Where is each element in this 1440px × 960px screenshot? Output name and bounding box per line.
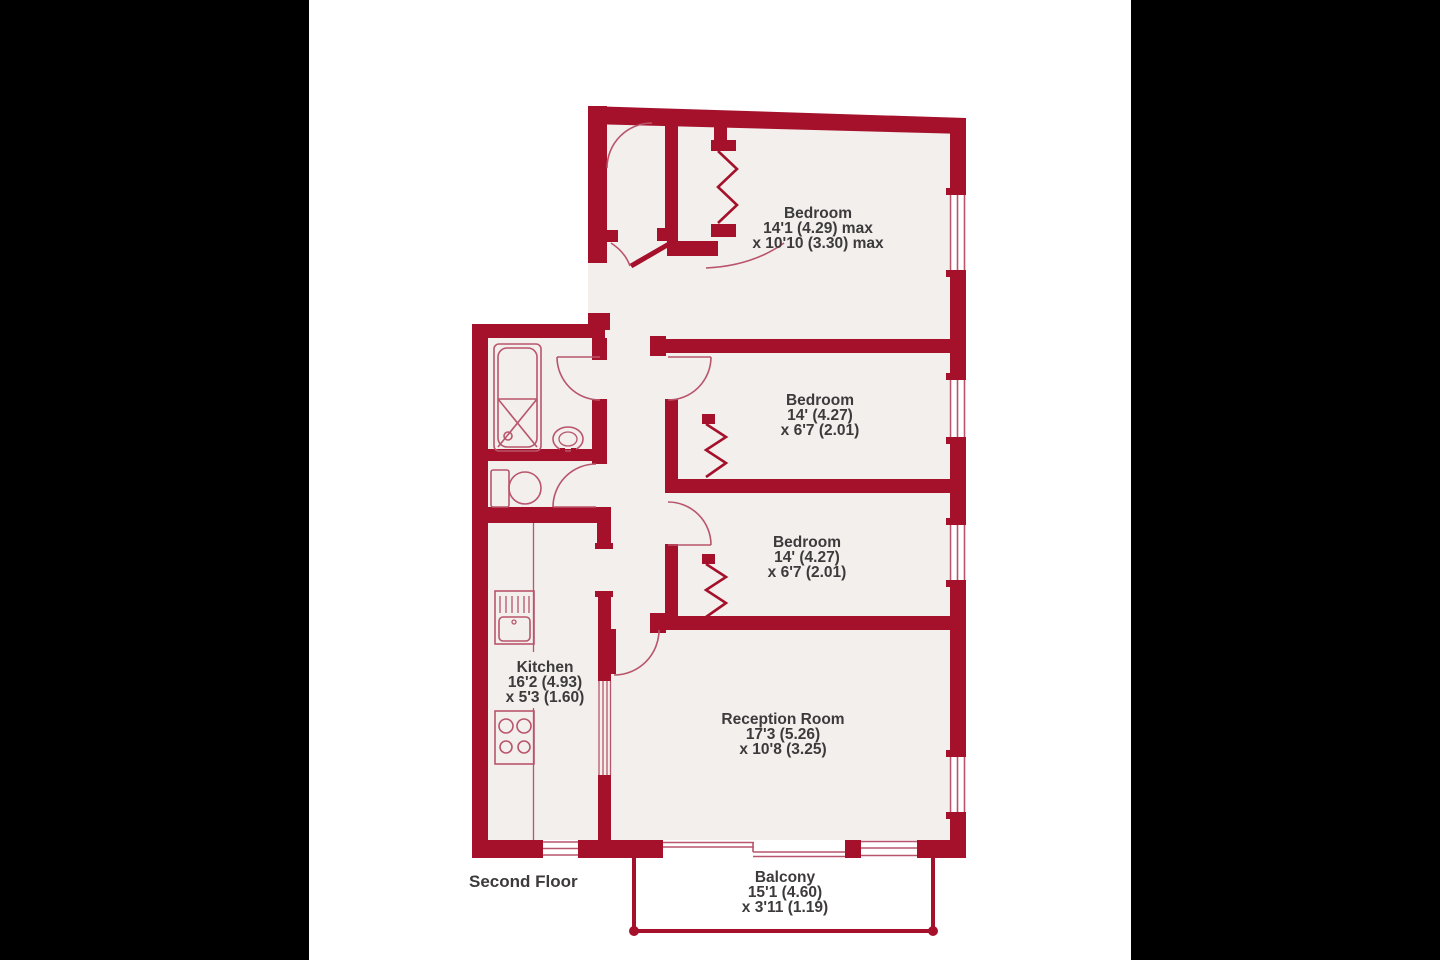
window-bedroom3 bbox=[946, 518, 967, 587]
window-kitchen-south bbox=[543, 840, 578, 858]
left-lower-wall bbox=[472, 324, 488, 858]
bedroom1-door-leaf bbox=[667, 241, 718, 256]
step-wall bbox=[472, 324, 605, 338]
bottom-wall-pier bbox=[845, 840, 861, 858]
window-reception-south bbox=[861, 840, 917, 858]
reception-dim2: x 10'8 (3.25) bbox=[739, 741, 826, 758]
reception-door-leaf bbox=[609, 629, 616, 674]
balcony-sliding-door bbox=[663, 840, 847, 858]
floor-plan: Bedroom 14'1 (4.29) max x 10'10 (3.30) m… bbox=[0, 0, 1440, 960]
floor-plan-page: Bedroom 14'1 (4.29) max x 10'10 (3.30) m… bbox=[0, 0, 1440, 960]
bedroom2-dim2: x 6'7 (2.01) bbox=[781, 422, 860, 439]
window-bedroom1 bbox=[946, 188, 967, 277]
bedroom3-dim2: x 6'7 (2.01) bbox=[768, 564, 847, 581]
bedroom1-dim2: x 10'10 (3.30) max bbox=[752, 235, 884, 252]
left-upper-wall bbox=[588, 106, 607, 263]
window-bedroom2 bbox=[946, 373, 967, 444]
balcony-dim2: x 3'11 (1.19) bbox=[742, 899, 828, 916]
kitchen-dim2: x 5'3 (1.60) bbox=[506, 689, 585, 706]
window-reception bbox=[946, 750, 967, 819]
floor-title: Second Floor bbox=[469, 872, 578, 891]
